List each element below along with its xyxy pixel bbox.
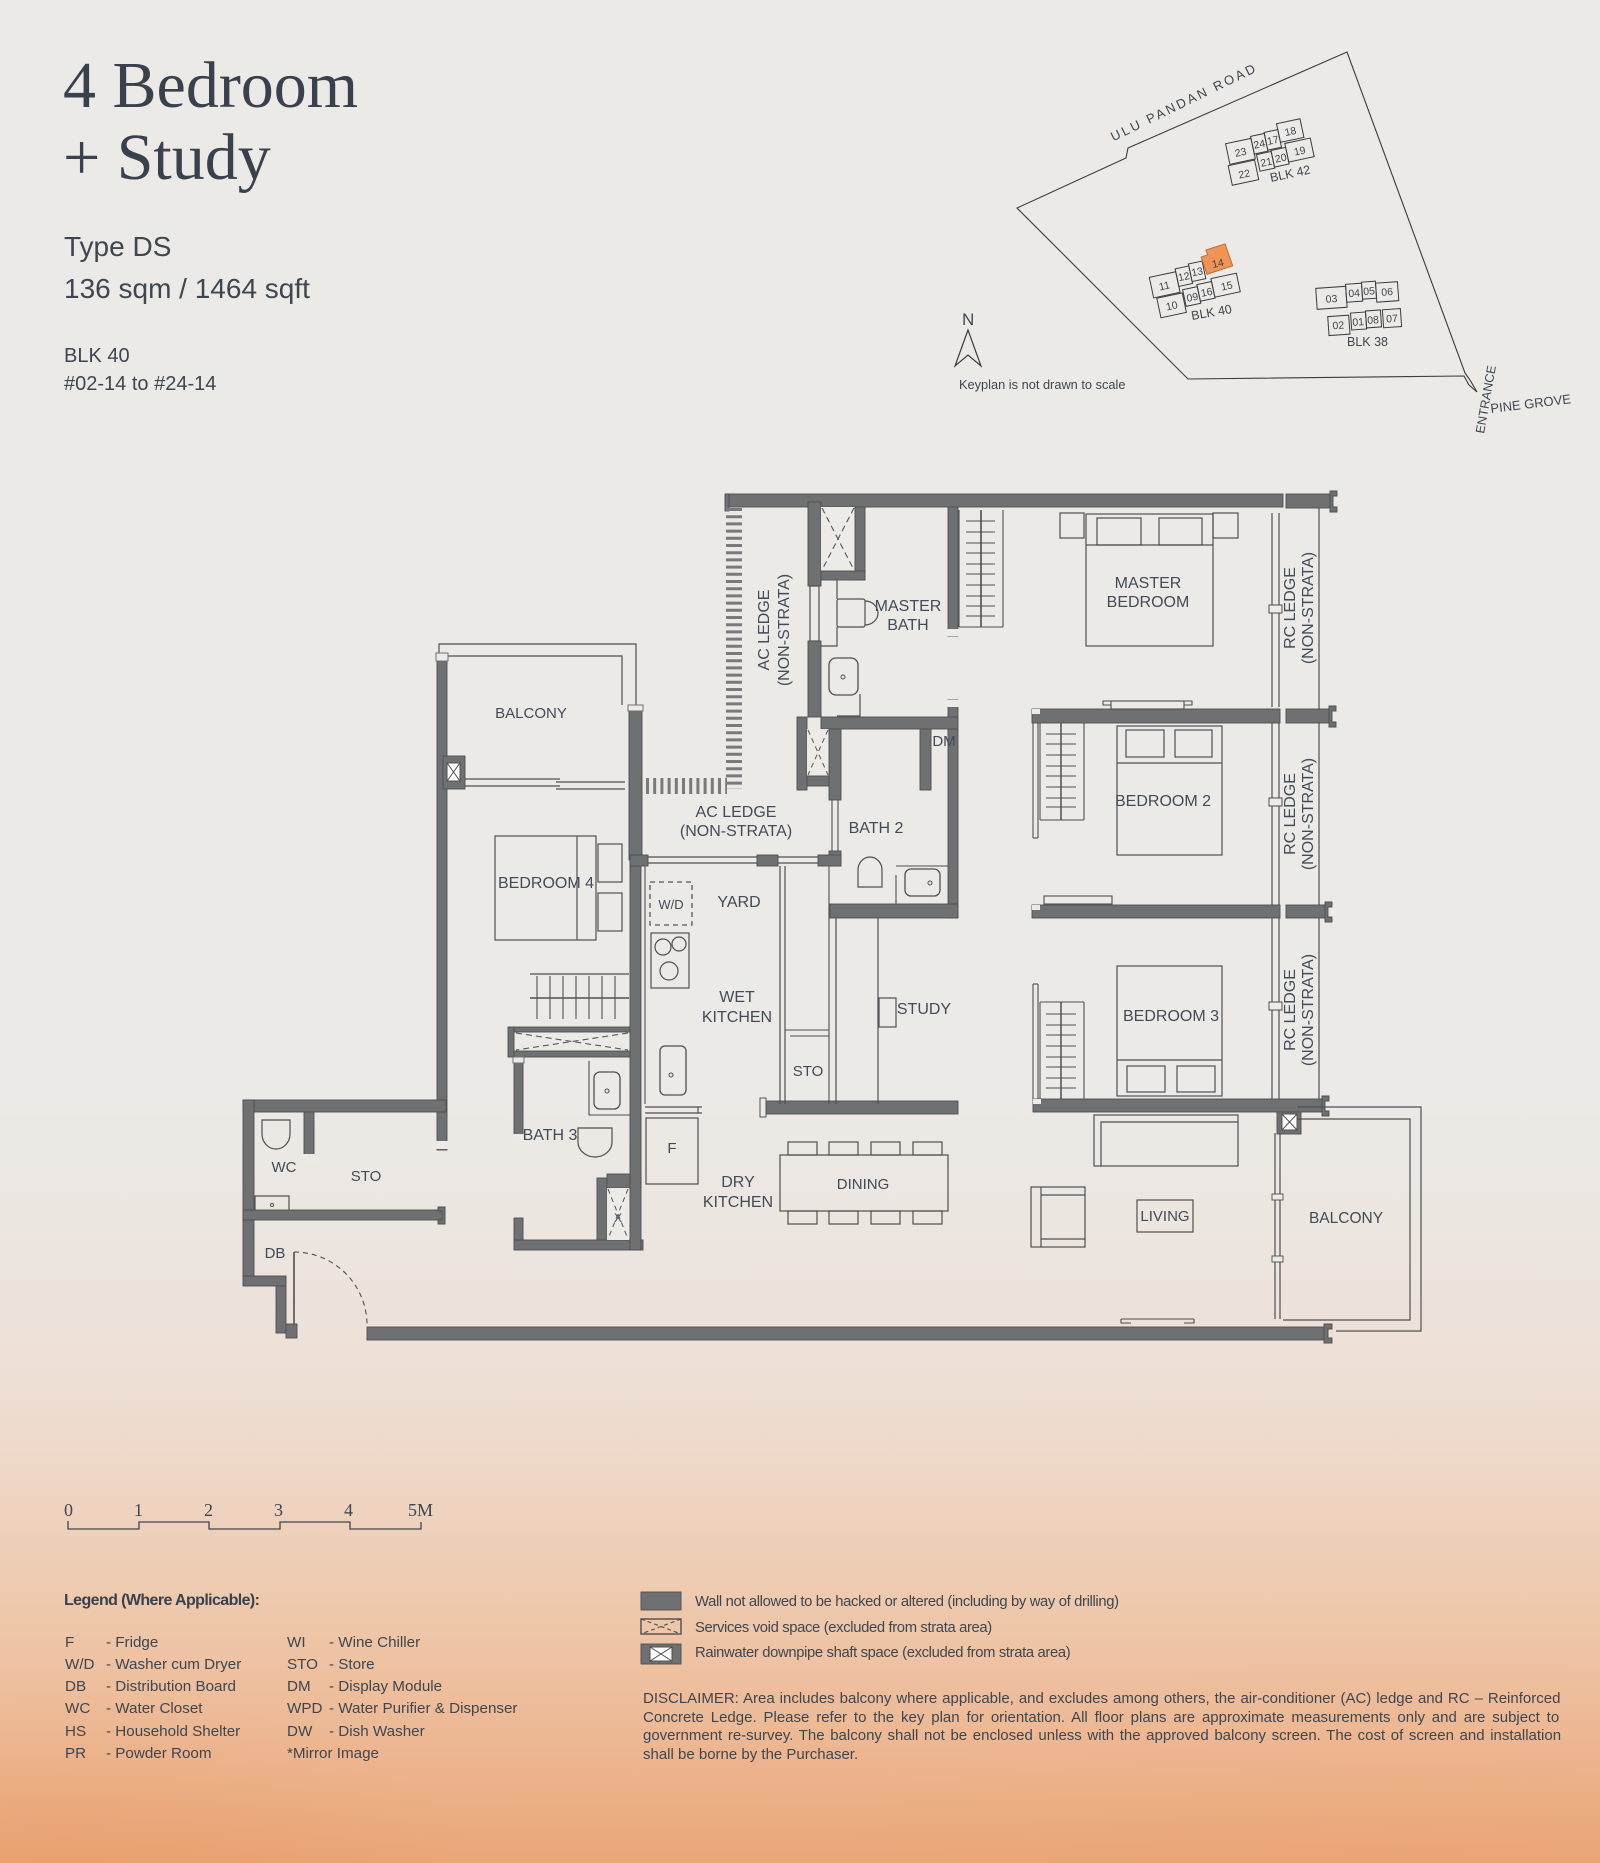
svg-text:BALCONY: BALCONY	[495, 705, 567, 722]
svg-text:RC LEDGE: RC LEDGE	[1282, 773, 1299, 855]
svg-text:BATH 2: BATH 2	[849, 820, 904, 837]
svg-text:07: 07	[1386, 313, 1399, 326]
svg-text:N: N	[962, 310, 974, 329]
svg-text:DB: DB	[265, 1245, 286, 1262]
svg-text:WC: WC	[65, 1700, 90, 1717]
svg-text:DINING: DINING	[837, 1176, 890, 1193]
svg-text:YARD: YARD	[717, 894, 760, 911]
svg-text:06: 06	[1381, 286, 1394, 299]
svg-text:MASTER: MASTER	[1115, 575, 1182, 592]
svg-text:- Powder Room: - Powder Room	[106, 1745, 212, 1762]
svg-text:- Store: - Store	[329, 1656, 375, 1673]
svg-text:AC LEDGE: AC LEDGE	[696, 804, 777, 821]
svg-text:DW: DW	[287, 1723, 313, 1740]
svg-text:5M: 5M	[408, 1500, 433, 1520]
svg-text:20: 20	[1274, 151, 1288, 165]
svg-text:24: 24	[1253, 138, 1267, 152]
svg-text:04: 04	[1348, 287, 1361, 300]
svg-text:- Household Shelter: - Household Shelter	[106, 1723, 240, 1740]
svg-text:(NON-STRATA): (NON-STRATA)	[1300, 758, 1317, 870]
svg-text:*Mirror Image: *Mirror Image	[287, 1745, 379, 1762]
svg-text:- Water Closet: - Water Closet	[106, 1700, 203, 1717]
svg-text:- Display Module: - Display Module	[329, 1678, 442, 1695]
svg-text:BLK 40: BLK 40	[64, 345, 130, 367]
svg-text:DRY: DRY	[721, 1174, 755, 1191]
svg-text:BALCONY: BALCONY	[1309, 1210, 1383, 1227]
svg-text:11: 11	[1158, 279, 1171, 293]
svg-text:F: F	[65, 1634, 74, 1651]
svg-text:01: 01	[1352, 316, 1365, 329]
svg-text:09: 09	[1186, 291, 1200, 305]
svg-text:WET: WET	[719, 989, 755, 1006]
svg-text:Rainwater downpipe shaft space: Rainwater downpipe shaft space (excluded…	[695, 1645, 1071, 1661]
svg-text:DB: DB	[65, 1678, 86, 1695]
svg-text:16: 16	[1200, 286, 1214, 300]
svg-text:BEDROOM 3: BEDROOM 3	[1123, 1008, 1219, 1025]
svg-text:DM: DM	[287, 1678, 311, 1695]
svg-text:AC LEDGE: AC LEDGE	[756, 590, 773, 671]
svg-text:03: 03	[1325, 293, 1338, 306]
svg-text:RC LEDGE: RC LEDGE	[1282, 969, 1299, 1051]
svg-text:12: 12	[1177, 270, 1191, 284]
svg-text:BLK 40: BLK 40	[1190, 302, 1233, 323]
svg-text:15: 15	[1220, 279, 1234, 293]
svg-text:DM: DM	[932, 733, 955, 750]
svg-text:LIVING: LIVING	[1140, 1208, 1189, 1225]
svg-text:STO: STO	[287, 1656, 318, 1673]
svg-text:Legend (Where Applicable):: Legend (Where Applicable):	[64, 1592, 259, 1609]
svg-text:WI: WI	[287, 1634, 306, 1651]
svg-text:BEDROOM 4: BEDROOM 4	[498, 875, 594, 892]
svg-text:STUDY: STUDY	[897, 1001, 952, 1018]
svg-text:- Water Purifier & Dispenser: - Water Purifier & Dispenser	[329, 1700, 518, 1717]
svg-text:0: 0	[64, 1500, 73, 1520]
svg-text:23: 23	[1234, 146, 1248, 160]
svg-text:4 Bedroom: 4 Bedroom	[63, 49, 358, 122]
svg-text:BEDROOM: BEDROOM	[1107, 594, 1190, 611]
svg-text:MASTER: MASTER	[875, 598, 942, 615]
svg-text:- Distribution Board: - Distribution Board	[106, 1678, 236, 1695]
svg-text:136 sqm / 1464 sqft: 136 sqm / 1464 sqft	[64, 273, 310, 304]
svg-text:- Dish Washer: - Dish Washer	[329, 1723, 425, 1740]
svg-text:WC: WC	[272, 1159, 297, 1176]
svg-text:RC LEDGE: RC LEDGE	[1282, 567, 1299, 649]
svg-text:2: 2	[204, 1500, 213, 1520]
svg-text:X: X	[614, 1211, 622, 1225]
svg-text:08: 08	[1367, 314, 1380, 327]
svg-text:18: 18	[1284, 125, 1298, 139]
svg-text:10: 10	[1165, 299, 1179, 313]
svg-text:PINE GROVE: PINE GROVE	[1490, 391, 1572, 416]
svg-text:Services void space (excluded: Services void space (excluded from strat…	[695, 1620, 992, 1636]
svg-text:+ Study: + Study	[63, 121, 271, 194]
svg-text:13: 13	[1190, 265, 1204, 279]
svg-text:W/D: W/D	[65, 1656, 95, 1673]
svg-text:Wall not allowed to be hacked: Wall not allowed to be hacked or altered…	[695, 1594, 1119, 1610]
svg-text:BLK 38: BLK 38	[1347, 335, 1388, 349]
svg-text:(NON-STRATA): (NON-STRATA)	[680, 823, 792, 840]
svg-text:F: F	[667, 1140, 676, 1157]
svg-text:BEDROOM 2: BEDROOM 2	[1115, 793, 1211, 810]
svg-text:4: 4	[344, 1500, 353, 1520]
svg-text:- Wine Chiller: - Wine Chiller	[329, 1634, 420, 1651]
svg-text:Type DS: Type DS	[64, 231, 171, 262]
svg-text:STO: STO	[351, 1168, 382, 1185]
svg-text:HS: HS	[65, 1723, 86, 1740]
svg-text:#02-14 to #24-14: #02-14 to #24-14	[64, 373, 216, 395]
svg-text:3: 3	[274, 1500, 283, 1520]
svg-text:(NON-STRATA): (NON-STRATA)	[1300, 552, 1317, 664]
svg-text:(NON-STRATA): (NON-STRATA)	[1300, 954, 1317, 1066]
svg-text:- Fridge: - Fridge	[106, 1634, 158, 1651]
svg-text:02: 02	[1332, 320, 1345, 333]
svg-text:KITCHEN: KITCHEN	[702, 1009, 772, 1026]
svg-text:STO: STO	[793, 1063, 824, 1080]
svg-text:22: 22	[1237, 167, 1251, 181]
svg-text:1: 1	[134, 1500, 143, 1520]
svg-text:BATH 3: BATH 3	[523, 1127, 578, 1144]
svg-text:17: 17	[1266, 134, 1280, 148]
svg-text:ULU PANDAN ROAD: ULU PANDAN ROAD	[1108, 60, 1260, 144]
svg-text:- Washer cum Dryer: - Washer cum Dryer	[106, 1656, 241, 1673]
svg-text:21: 21	[1259, 156, 1273, 170]
svg-text:BLK 42: BLK 42	[1269, 163, 1312, 185]
svg-text:Keyplan is not drawn to scale: Keyplan is not drawn to scale	[959, 377, 1125, 392]
svg-text:WPD: WPD	[287, 1700, 322, 1717]
svg-text:W/D: W/D	[658, 897, 683, 912]
svg-text:19: 19	[1293, 144, 1307, 158]
svg-text:KITCHEN: KITCHEN	[703, 1194, 773, 1211]
svg-text:BATH: BATH	[887, 617, 928, 634]
svg-text:05: 05	[1363, 285, 1376, 298]
svg-text:PR: PR	[65, 1745, 86, 1762]
svg-text:(NON-STRATA): (NON-STRATA)	[776, 574, 793, 686]
